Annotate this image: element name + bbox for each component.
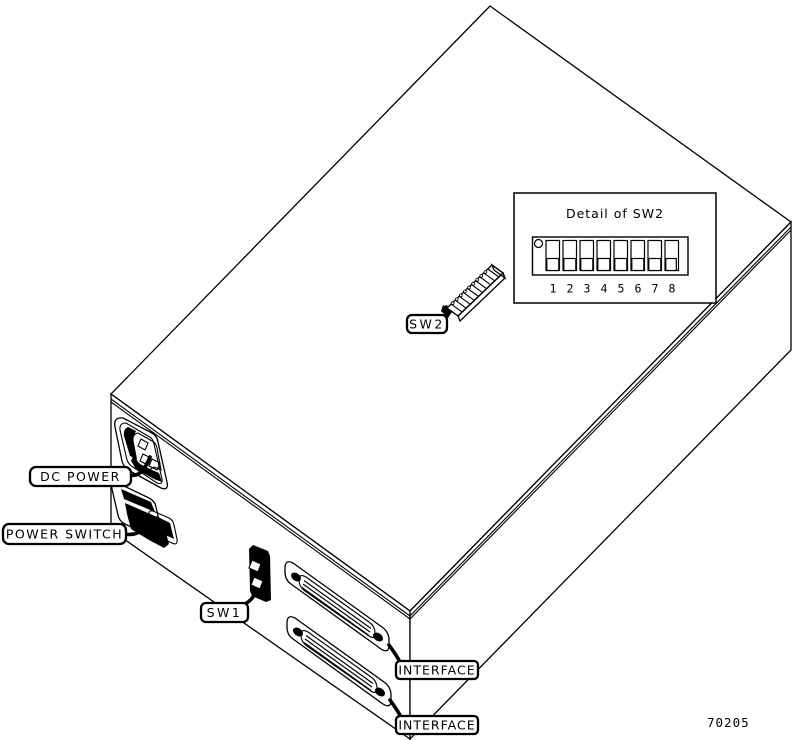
dip-number-6: 6 <box>635 282 642 296</box>
dip-number-3: 3 <box>584 282 591 296</box>
callout-label-interface-lower: INTERFACE <box>398 718 475 733</box>
dip-switch-5 <box>614 241 628 271</box>
dip-switch-7 <box>648 241 662 271</box>
dip-switch-4 <box>597 241 611 271</box>
callout-sw2: SW2 <box>407 315 447 333</box>
dip-number-8: 8 <box>669 282 676 296</box>
callout-label-power-switch: POWER SWITCH <box>6 527 123 542</box>
callout-interface-lower: INTERFACE <box>396 716 478 734</box>
dip-number-5: 5 <box>618 282 625 296</box>
sw2-detail-inset: Detail of SW2 1 2 3 4 5 6 7 8 <box>514 193 716 303</box>
callout-label-dc-power: DC POWER <box>40 469 121 484</box>
dip-number-7: 7 <box>652 282 659 296</box>
figure-number: 70205 <box>707 715 750 730</box>
dip-index-marker <box>535 240 543 248</box>
callout-power-switch: POWER SWITCH <box>3 524 126 544</box>
callout-label-sw1: SW1 <box>207 605 243 620</box>
callout-label-interface-upper: INTERFACE <box>398 663 475 678</box>
device-diagram: Detail of SW2 1 2 3 4 5 6 7 8 DC POWER <box>0 0 795 740</box>
dip-switch-3 <box>580 241 594 271</box>
sw1-switch <box>249 545 271 602</box>
dip-number-2: 2 <box>567 282 574 296</box>
callout-sw1: SW1 <box>201 603 248 622</box>
dip-number-1: 1 <box>550 282 557 296</box>
callout-interface-upper: INTERFACE <box>396 661 478 679</box>
detail-title: Detail of SW2 <box>566 206 664 221</box>
dip-switch-1 <box>546 241 560 271</box>
dip-switch-8 <box>665 241 679 271</box>
callout-label-sw2: SW2 <box>409 317 445 332</box>
device-box <box>111 6 791 739</box>
figure-canvas: Detail of SW2 1 2 3 4 5 6 7 8 DC POWER <box>0 0 795 740</box>
dip-number-4: 4 <box>601 282 608 296</box>
dip-switch-6 <box>631 241 645 271</box>
callout-dc-power: DC POWER <box>30 467 131 486</box>
dip-switch-2 <box>563 241 577 271</box>
